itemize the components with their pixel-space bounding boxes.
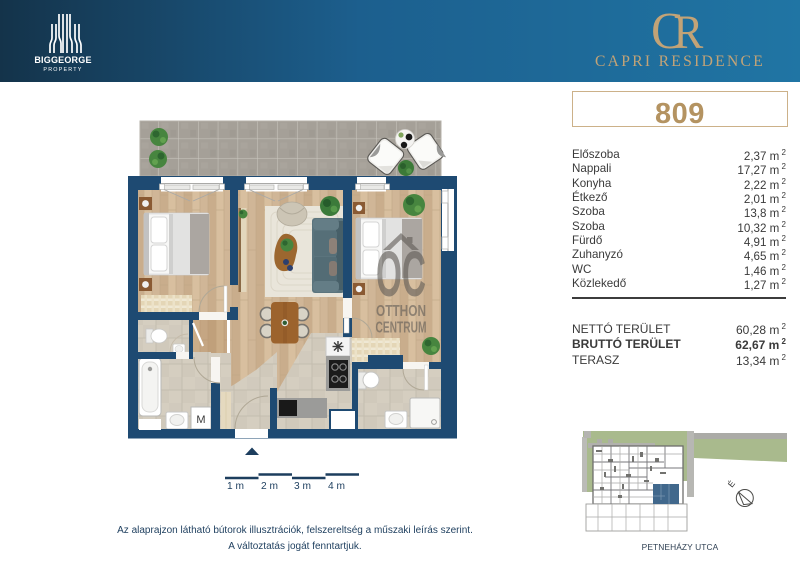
- svg-text:M: M: [196, 414, 205, 426]
- svg-text:1 m: 1 m: [227, 481, 244, 492]
- svg-text:É: É: [726, 478, 738, 489]
- svg-text:2 m: 2 m: [261, 481, 278, 492]
- svg-text:3 m: 3 m: [294, 481, 311, 492]
- svg-text:OTTHON: OTTHON: [376, 303, 426, 320]
- svg-text:OC: OC: [376, 238, 426, 310]
- svg-text:4 m: 4 m: [328, 481, 345, 492]
- svg-text:CENTRUM: CENTRUM: [376, 320, 427, 337]
